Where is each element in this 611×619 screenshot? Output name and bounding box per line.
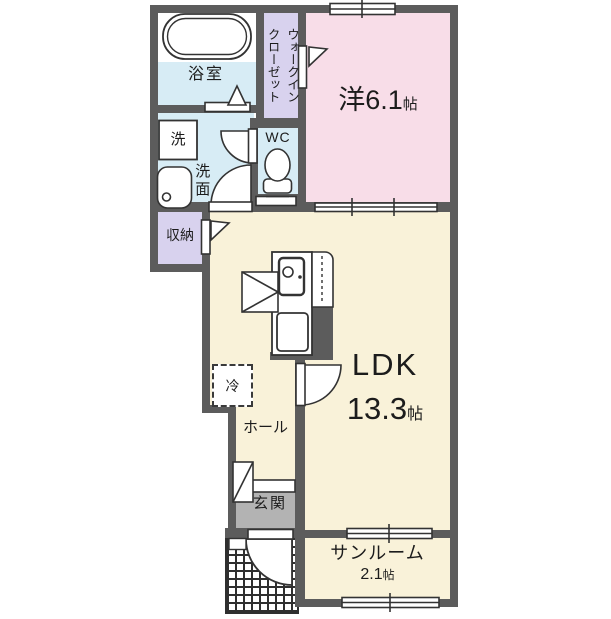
floor-plan: 浴室 洗 洗面 WC ウォークイン クローゼット 洋6.1帖 収納 冷 LDK … [0, 0, 611, 619]
kitchen-counter-icon [272, 252, 333, 355]
sunroom-label: サンルーム 2.1帖 [310, 543, 445, 584]
sliding-door [315, 198, 437, 216]
ldk-name: LDK [315, 347, 455, 383]
ldk-unit: 帖 [407, 406, 423, 423]
porch-side-step [229, 539, 246, 550]
western-room-label: 洋6.1帖 [306, 85, 450, 116]
hall-label: ホール [236, 419, 295, 436]
western-room-unit: 帖 [403, 96, 418, 113]
refrigerator-label: 冷 [226, 376, 240, 396]
walk-in-closet-label: ウォークイン クローゼット [261, 13, 301, 117]
washroom-door-arc [211, 165, 251, 205]
bath-folding-door-icon [228, 86, 246, 105]
wc-label: WC [258, 129, 298, 145]
entrance-door-arc [246, 539, 292, 585]
sunroom-size-number: 2.1 [360, 566, 382, 583]
toilet-icon [264, 149, 292, 197]
kitchen-hood-symbol [242, 272, 278, 312]
sunroom-name: サンルーム [310, 543, 445, 564]
stove-icon [277, 313, 308, 351]
bathtub-icon [163, 14, 251, 59]
wc-bottom-bar [256, 197, 296, 206]
washroom-door-leaf [209, 202, 252, 212]
bathroom-label: 浴室 [160, 66, 252, 84]
sink-icon [158, 167, 192, 208]
walk-in-closet-line1: ウォークイン [282, 13, 301, 117]
refrigerator-box: 冷 [212, 364, 253, 407]
closet-opening-arrow-icon [309, 47, 327, 66]
laundry-label: 洗 [159, 120, 197, 159]
western-room-size: 6.1 [365, 85, 403, 115]
entrance-label: 玄関 [243, 495, 297, 512]
sunroom-size: 2.1帖 [310, 566, 445, 584]
walk-in-closet-line2: クローゼット [262, 13, 281, 117]
sunroom-unit: 帖 [383, 568, 395, 582]
ldk-size: 13.3帖 [315, 391, 455, 427]
window [347, 524, 432, 543]
storage-opening-arrow-icon [211, 221, 229, 240]
ldk-label: LDK 13.3帖 [315, 347, 455, 426]
window [342, 593, 439, 612]
ldk-door-leaf [296, 364, 305, 406]
entrance-door-leaf [248, 530, 293, 540]
window [330, 0, 395, 18]
ldk-size-number: 13.3 [347, 391, 407, 426]
entrance-step [252, 480, 295, 492]
storage-door-leaf [202, 220, 211, 254]
storage-label: 収納 [158, 227, 202, 243]
western-room-kanji: 洋 [338, 85, 365, 115]
washroom-label: 洗面 [193, 152, 210, 210]
wc-door-leaf [249, 129, 258, 163]
